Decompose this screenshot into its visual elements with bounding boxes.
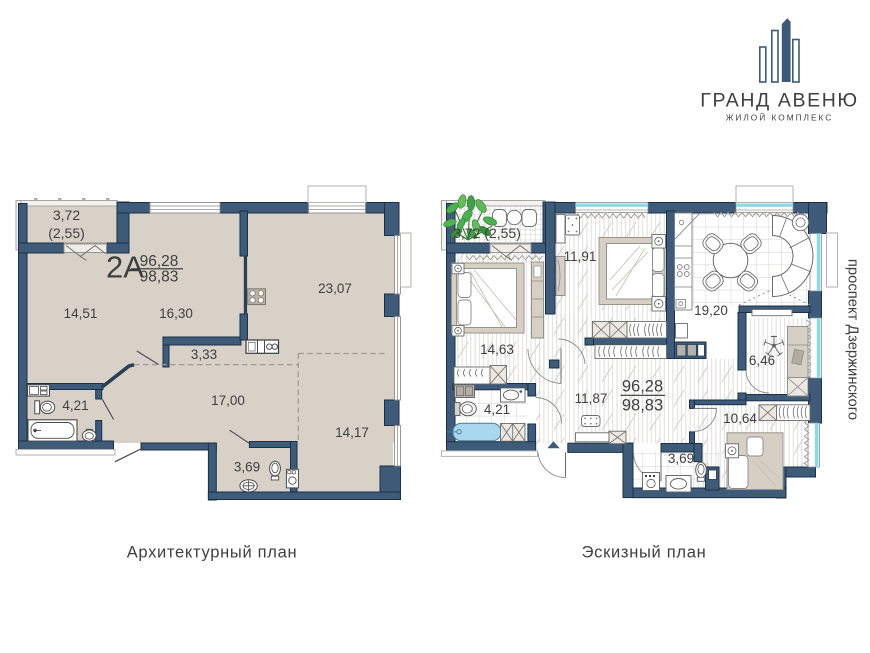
svg-text:96,28: 96,28 bbox=[622, 378, 663, 396]
svg-text:3,69: 3,69 bbox=[668, 451, 694, 466]
svg-text:2А: 2А bbox=[106, 250, 144, 285]
svg-text:3,72 (2,55): 3,72 (2,55) bbox=[453, 225, 521, 241]
svg-text:Архитектурный план: Архитектурный план bbox=[127, 544, 298, 562]
svg-text:(2,55): (2,55) bbox=[48, 225, 85, 241]
svg-text:3,72: 3,72 bbox=[53, 207, 80, 223]
svg-text:проспект Дзержинского: проспект Дзержинского bbox=[845, 259, 861, 420]
svg-text:6,46: 6,46 bbox=[749, 353, 775, 368]
svg-text:3,33: 3,33 bbox=[191, 347, 217, 362]
svg-text:ГРАНД АВЕНЮ: ГРАНД АВЕНЮ bbox=[700, 90, 858, 112]
svg-text:98,83: 98,83 bbox=[140, 269, 179, 286]
svg-text:11,87: 11,87 bbox=[575, 391, 608, 406]
svg-text:4,21: 4,21 bbox=[484, 402, 510, 417]
svg-text:96,28: 96,28 bbox=[140, 253, 179, 270]
svg-text:3,69: 3,69 bbox=[234, 460, 260, 475]
svg-text:16,30: 16,30 bbox=[159, 306, 193, 321]
svg-text:ЖИЛОЙ КОМПЛЕКС: ЖИЛОЙ КОМПЛЕКС bbox=[726, 112, 834, 123]
svg-text:17,00: 17,00 bbox=[211, 393, 245, 408]
svg-text:98,83: 98,83 bbox=[622, 397, 663, 415]
svg-text:Эскизный план: Эскизный план bbox=[582, 544, 707, 562]
svg-text:19,20: 19,20 bbox=[694, 303, 728, 318]
svg-text:14,51: 14,51 bbox=[64, 306, 98, 321]
svg-text:23,07: 23,07 bbox=[318, 281, 352, 296]
svg-text:14,63: 14,63 bbox=[480, 342, 514, 357]
svg-text:10,64: 10,64 bbox=[723, 411, 757, 426]
svg-text:14,17: 14,17 bbox=[335, 425, 369, 440]
svg-text:11,91: 11,91 bbox=[564, 249, 597, 264]
svg-text:4,21: 4,21 bbox=[62, 398, 88, 413]
